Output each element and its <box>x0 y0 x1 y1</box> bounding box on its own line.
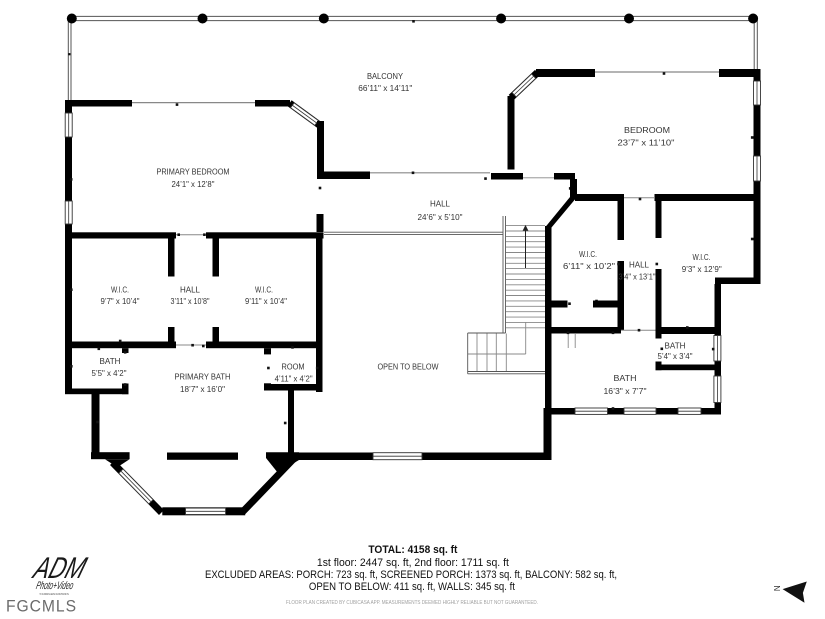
svg-text:BATH: BATH <box>614 373 637 383</box>
svg-text:3’4" x 13’1": 3’4" x 13’1" <box>619 271 656 281</box>
svg-text:PRIMARY BATH: PRIMARY BATH <box>175 371 231 381</box>
svg-text:ROOM: ROOM <box>282 361 305 371</box>
svg-text:1st floor: 2447 sq. ft, 2nd fl: 1st floor: 2447 sq. ft, 2nd floor: 1711 … <box>317 557 509 569</box>
svg-text:3’11" x 10’8": 3’11" x 10’8" <box>171 296 210 306</box>
svg-text:Photo+Video: Photo+Video <box>35 580 75 592</box>
svg-text:OPEN TO BELOW: OPEN TO BELOW <box>378 362 439 372</box>
svg-text:23’7" x 11’10": 23’7" x 11’10" <box>618 138 675 148</box>
svg-text:6’11" x 10’2": 6’11" x 10’2" <box>563 261 615 271</box>
svg-text:66’11" x 14’11": 66’11" x 14’11" <box>358 83 412 93</box>
svg-text:9’11" x 10’4": 9’11" x 10’4" <box>245 296 287 306</box>
svg-text:9’7" x 10’4": 9’7" x 10’4" <box>101 296 140 306</box>
svg-text:W.I.C.: W.I.C. <box>111 284 129 294</box>
svg-text:OPEN TO BELOW: 411 sq. ft, WAL: OPEN TO BELOW: 411 sq. ft, WALLS: 345 sq… <box>309 581 515 593</box>
svg-text:W.I.C.: W.I.C. <box>693 252 711 262</box>
svg-text:18’7" x 16’0": 18’7" x 16’0" <box>180 384 225 394</box>
svg-text:9’3" x 12’9": 9’3" x 12’9" <box>682 264 722 274</box>
svg-text:24’6" x 5’10": 24’6" x 5’10" <box>418 212 463 222</box>
svg-text:W.I.C.: W.I.C. <box>255 284 273 294</box>
svg-text:BATH: BATH <box>100 356 121 366</box>
svg-text:EXCLUDED AREAS: PORCH: 723 sq.: EXCLUDED AREAS: PORCH: 723 sq. ft, SCREE… <box>205 569 617 581</box>
svg-text:FGCMLS: FGCMLS <box>6 598 77 616</box>
svg-text:PRIMARY BEDROOM: PRIMARY BEDROOM <box>157 167 230 177</box>
svg-text:BATH: BATH <box>665 341 686 351</box>
svg-text:BALCONY: BALCONY <box>367 71 403 81</box>
svg-text:16’3" x 7’7": 16’3" x 7’7" <box>604 386 647 396</box>
svg-text:TOTAL: 4158 sq. ft: TOTAL: 4158 sq. ft <box>368 544 457 556</box>
svg-text:HALL: HALL <box>180 284 200 294</box>
svg-text:4’11" x 4’2": 4’11" x 4’2" <box>275 373 313 383</box>
svg-text:HALL: HALL <box>629 260 649 270</box>
svg-text:5’4" x 3’4": 5’4" x 3’4" <box>658 351 693 361</box>
svg-text:BEDROOM: BEDROOM <box>624 125 670 135</box>
svg-text:W.I.C.: W.I.C. <box>579 249 597 259</box>
svg-text:5’5" x 4’2": 5’5" x 4’2" <box>92 368 127 378</box>
svg-text:FLOOR PLAN CREATED BY CUBICASA: FLOOR PLAN CREATED BY CUBICASA APP. MEAS… <box>286 600 538 606</box>
svg-text:24’1" x 12’8": 24’1" x 12’8" <box>172 179 215 189</box>
svg-text:HALL: HALL <box>430 199 450 209</box>
svg-text:YOUR IMAGE IS OUR PASSION: YOUR IMAGE IS OUR PASSION <box>39 592 69 596</box>
svg-text:N: N <box>772 585 781 591</box>
